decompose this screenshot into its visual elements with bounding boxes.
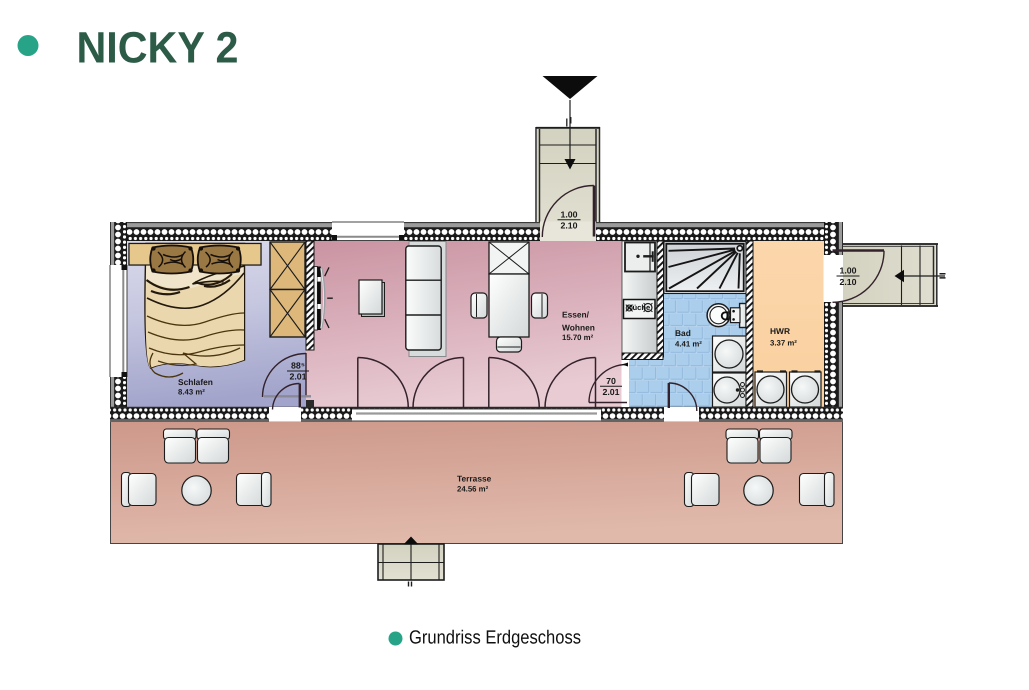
- svg-text:2.01: 2.01: [602, 387, 619, 397]
- svg-text:Terrasse: Terrasse: [457, 474, 492, 484]
- svg-text:2.01: 2.01: [289, 372, 306, 382]
- svg-text:1.00: 1.00: [560, 210, 577, 220]
- svg-text:NICKY 2: NICKY 2: [77, 24, 239, 73]
- svg-text:Wohnen: Wohnen: [562, 323, 595, 333]
- svg-text:HWR: HWR: [770, 326, 790, 336]
- svg-text:Bad: Bad: [675, 328, 691, 338]
- svg-text:15.70 m²: 15.70 m²: [562, 333, 594, 342]
- svg-text:2.10: 2.10: [839, 277, 856, 287]
- svg-text:70: 70: [606, 376, 616, 386]
- svg-text:88⁵: 88⁵: [291, 361, 305, 371]
- svg-text:24.56 m²: 24.56 m²: [457, 485, 489, 494]
- svg-text:3.37 m²: 3.37 m²: [770, 339, 797, 348]
- svg-text:Essen/: Essen/: [562, 310, 590, 320]
- svg-text:2.10: 2.10: [560, 221, 577, 231]
- svg-text:Grundriss Erdgeschoss: Grundriss Erdgeschoss: [409, 628, 581, 649]
- svg-text:4.41 m²: 4.41 m²: [675, 340, 702, 349]
- svg-text:1.00: 1.00: [839, 266, 856, 276]
- svg-text:Schlafen: Schlafen: [178, 377, 213, 387]
- svg-text:Küche: Küche: [627, 303, 650, 312]
- svg-text:8.43 m²: 8.43 m²: [178, 388, 205, 397]
